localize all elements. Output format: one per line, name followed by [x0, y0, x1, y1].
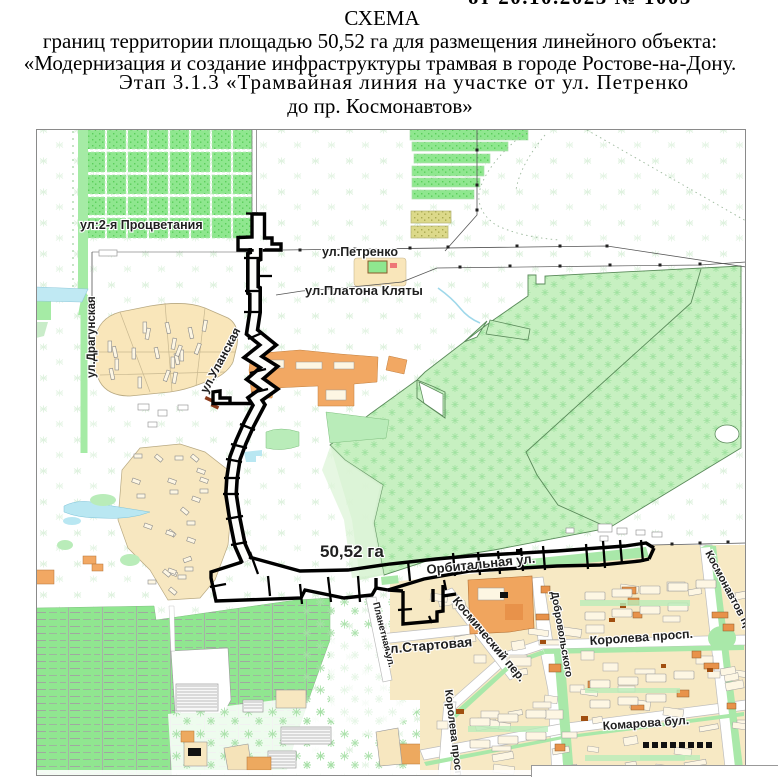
- svg-text:ул.Платона Кляты: ул.Платона Кляты: [305, 283, 423, 298]
- svg-text:ул.Драгунская: ул.Драгунская: [86, 296, 98, 378]
- svg-text:ул:2-я Процветания: ул:2-я Процветания: [80, 218, 203, 232]
- svg-text:50,52 га: 50,52 га: [320, 542, 384, 561]
- svg-text:ул.Петренко: ул.Петренко: [322, 245, 398, 259]
